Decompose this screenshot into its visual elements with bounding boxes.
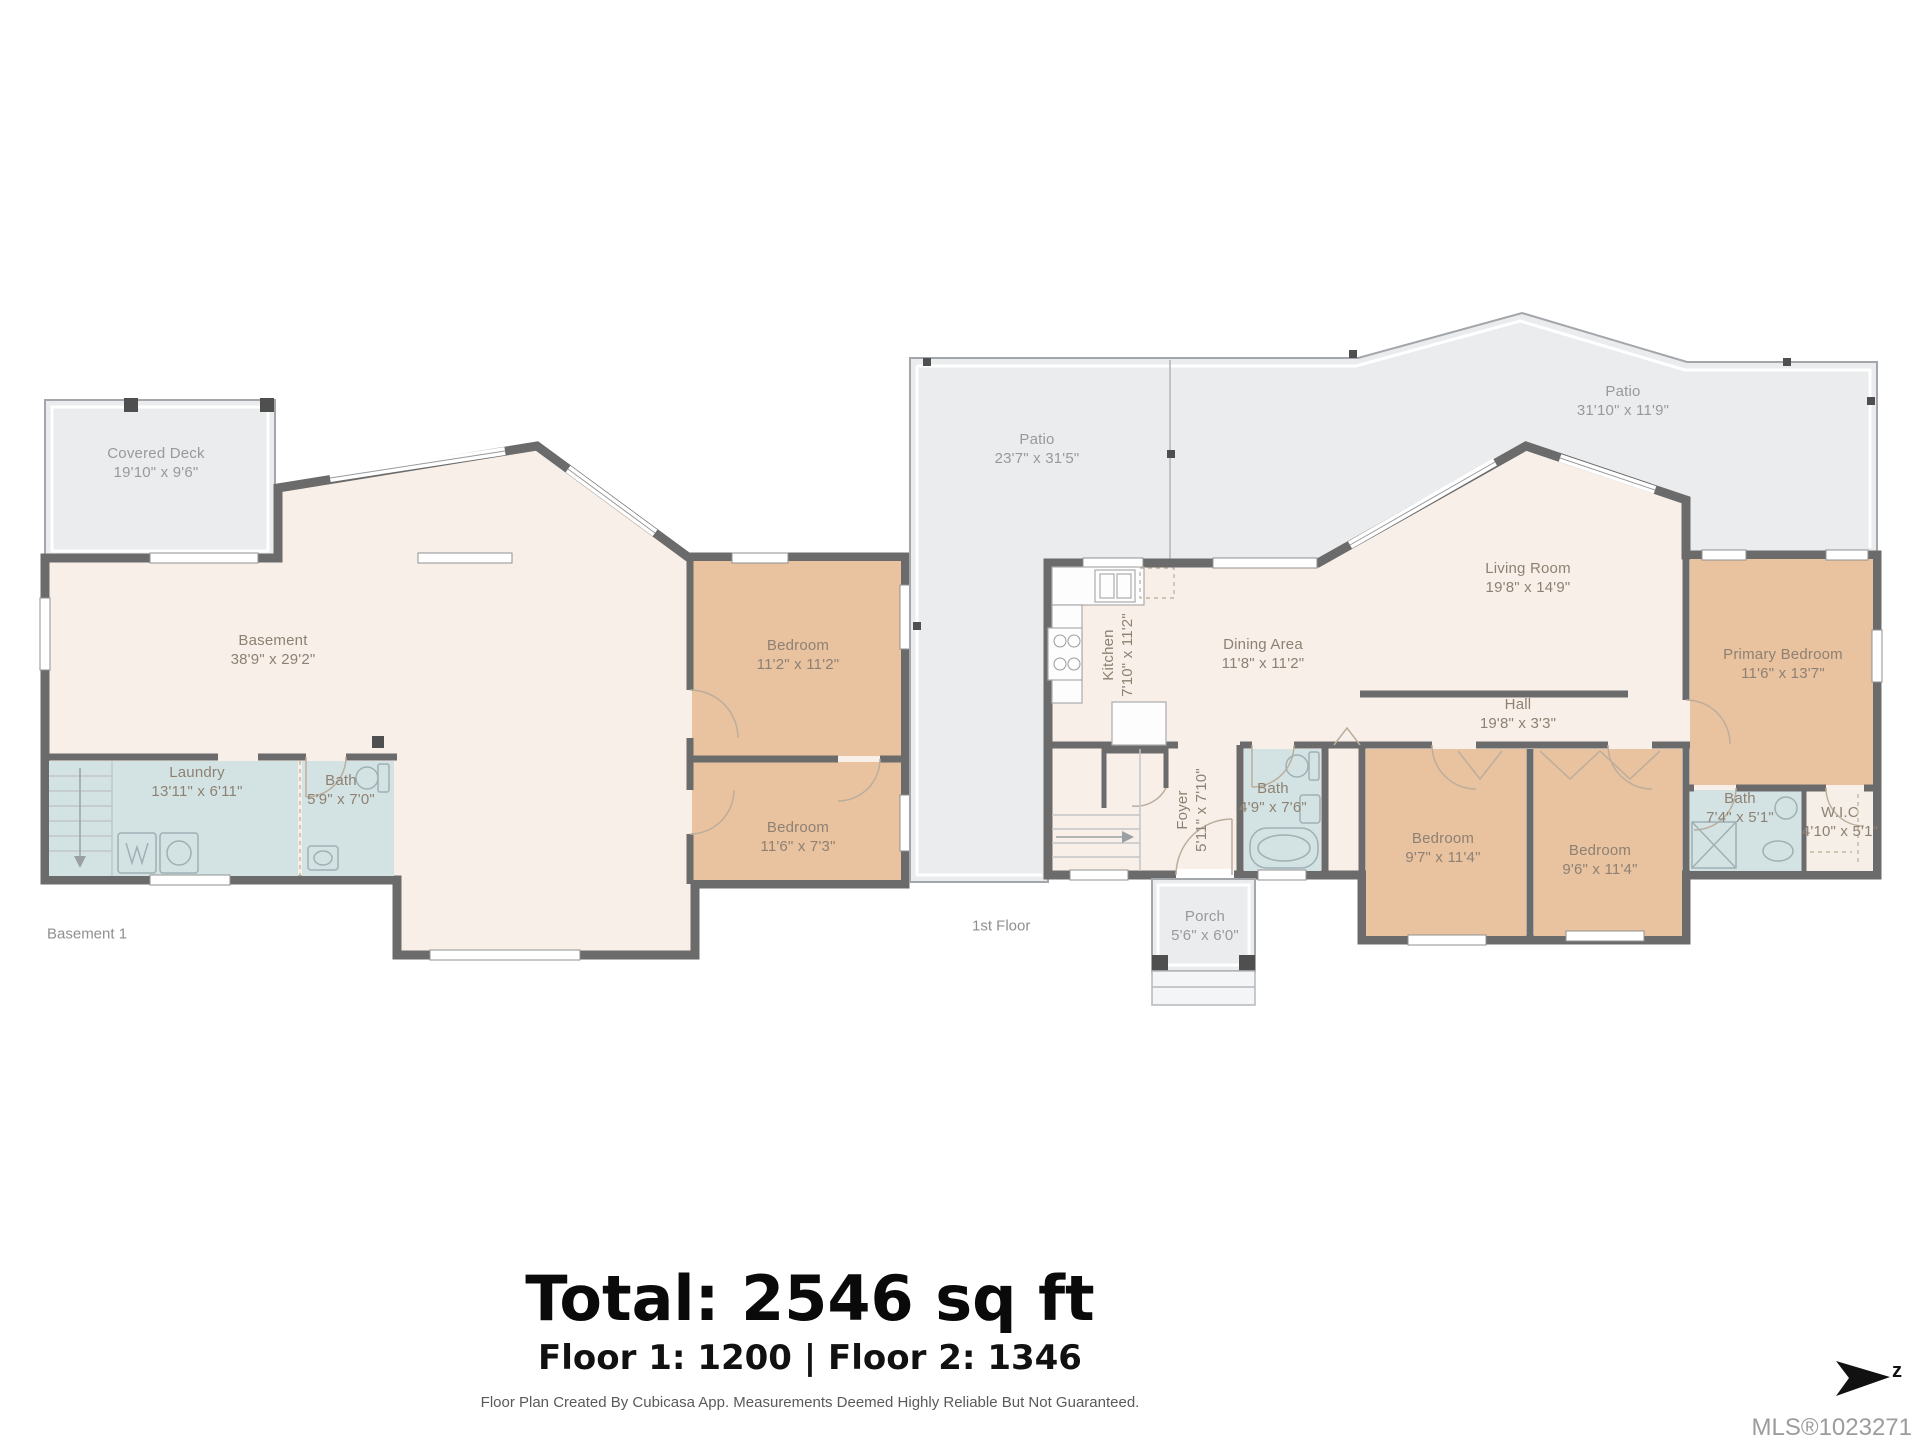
total-area-heading: Total: 2546 sq ft — [525, 1262, 1094, 1335]
room-label-main-bath: Bath 4'9" x 7'6" — [1239, 779, 1307, 817]
room-label-basement-bath: Bath 5'9" x 7'0" — [307, 771, 375, 809]
floorplan-sheet: Covered Deck 19'10" x 9'6" Basement 38'9… — [0, 0, 1920, 1440]
floor-label-first-floor: 1st Floor — [972, 918, 1030, 935]
room-label-basement-bedroom-lower: Bedroom 11'6" x 7'3" — [760, 818, 835, 856]
room-label-ensuite-bath: Bath 7'4" x 5'1" — [1706, 789, 1774, 827]
floorplan-canvas — [0, 0, 1920, 1440]
room-label-bedroom-right: Bedroom 9'6" x 11'4" — [1562, 841, 1637, 879]
basement-floorplan-graphic — [40, 398, 910, 960]
room-label-foyer: Foyer 5'11" x 7'10" — [1173, 768, 1211, 852]
room-label-basement: Basement 38'9" x 29'2" — [231, 631, 316, 669]
room-label-bedroom-left: Bedroom 9'7" x 11'4" — [1405, 829, 1480, 867]
room-label-living-room: Living Room 19'8" x 14'9" — [1485, 559, 1571, 597]
room-label-covered-deck: Covered Deck 19'10" x 9'6" — [107, 444, 204, 482]
disclaimer-text: Floor Plan Created By Cubicasa App. Meas… — [481, 1394, 1140, 1411]
room-label-kitchen: Kitchen 7'10" x 11'2" — [1099, 613, 1137, 697]
floor-areas-line: Floor 1: 1200 | Floor 2: 1346 — [538, 1338, 1082, 1378]
compass-letter: z — [1892, 1360, 1902, 1383]
floor-label-basement: Basement 1 — [47, 926, 127, 943]
compass-icon: z — [1836, 1352, 1894, 1402]
room-label-laundry: Laundry 13'11" x 6'11" — [151, 763, 242, 801]
mls-number: MLS®1023271 — [1752, 1414, 1912, 1440]
room-label-patio-right: Patio 31'10" x 11'9" — [1577, 382, 1669, 420]
compass-arrow-icon — [1836, 1352, 1890, 1402]
room-label-basement-bedroom-upper: Bedroom 11'2" x 11'2" — [757, 636, 840, 674]
room-label-dining-area: Dining Area 11'8" x 11'2" — [1222, 635, 1305, 673]
room-label-wic: W.I.C 4'10" x 5'1" — [1802, 803, 1878, 841]
room-label-patio-left: Patio 23'7" x 31'5" — [995, 430, 1080, 468]
room-label-porch: Porch 5'6" x 6'0" — [1171, 907, 1239, 945]
room-label-primary-bedroom: Primary Bedroom 11'6" x 13'7" — [1723, 645, 1843, 683]
room-label-hall: Hall 19'8" x 3'3" — [1480, 695, 1556, 733]
